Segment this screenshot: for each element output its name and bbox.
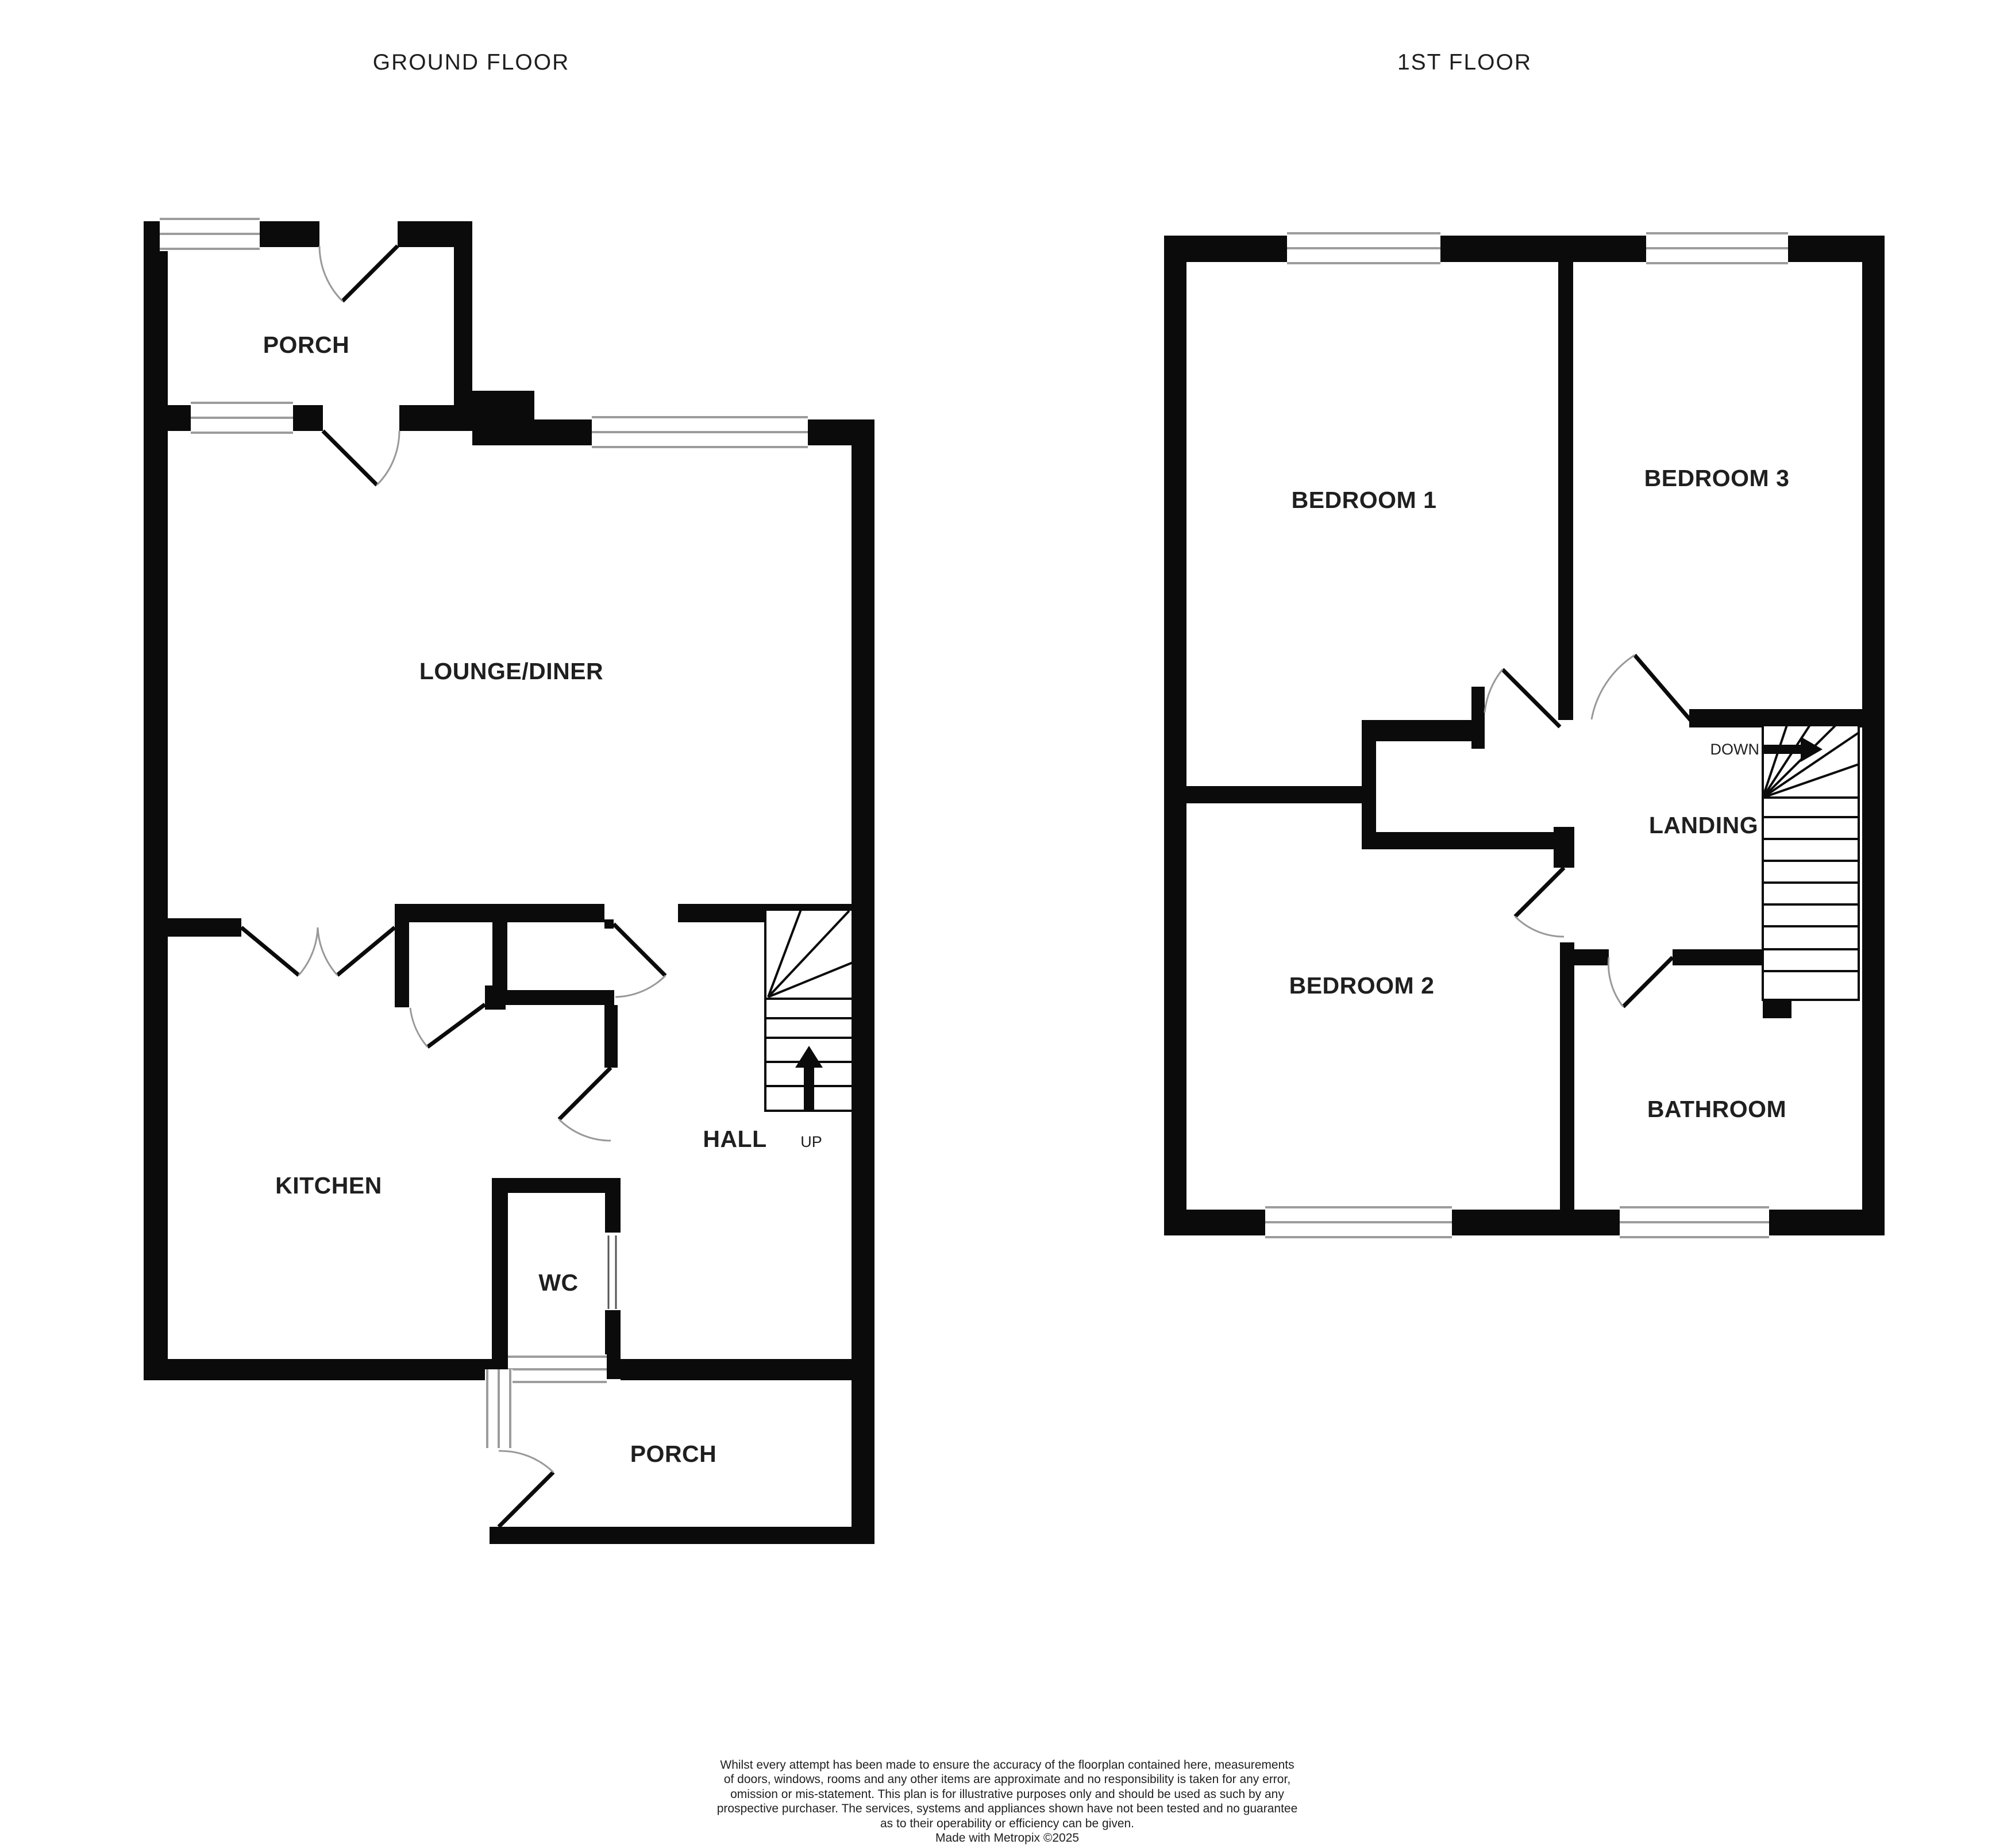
window-porch-top: [160, 217, 260, 251]
floorplan-drawing: GROUND FLOOR: [0, 0, 2015, 1848]
room-label-landing: LANDING: [1649, 812, 1758, 838]
gf-room-labels: PORCH LOUNGE/DINER KITCHEN HALL WC PORCH: [263, 332, 767, 1467]
door-bedroom1: [1485, 669, 1560, 727]
gf-left-wall: [144, 221, 168, 1380]
door-bathroom: [1608, 957, 1673, 1007]
window-lounge-left: [191, 401, 293, 435]
disclaimer-line: omission or mis-statement. This plan is …: [730, 1788, 1284, 1801]
room-label-hall: HALL: [703, 1126, 766, 1152]
window-porch-bottom-left: [485, 1369, 513, 1448]
room-label-bathroom: BATHROOM: [1647, 1096, 1786, 1122]
door-kitchen-double: [241, 927, 395, 975]
door-porch-top: [319, 246, 398, 301]
disclaimer-line: Whilst every attempt has been made to en…: [720, 1758, 1294, 1772]
credit-line: Made with Metropix ©2025: [935, 1831, 1079, 1845]
door-porch-lounge: [323, 431, 399, 485]
door-wc-pocket: [608, 1235, 616, 1309]
disclaimer-line: prospective purchaser. The services, sys…: [717, 1802, 1298, 1815]
room-label-lounge-diner: LOUNGE/DINER: [419, 658, 603, 684]
floorplan-page: GROUND FLOOR: [0, 0, 2015, 1848]
window-wc-porch: [508, 1354, 607, 1384]
door-bedroom3: [1592, 655, 1694, 724]
ff-stairs-direction: DOWN: [1710, 741, 1759, 758]
room-label-porch-top: PORCH: [263, 332, 350, 358]
window-bedroom1: [1287, 231, 1440, 265]
room-label-bedroom-1: BEDROOM 1: [1292, 487, 1437, 513]
gf-stairs-direction: UP: [800, 1133, 822, 1150]
gf-porch-right-wall: [454, 221, 472, 405]
room-label-bedroom-3: BEDROOM 3: [1644, 465, 1790, 491]
door-lounge-hall: [614, 924, 665, 997]
first-floor-title: 1ST FLOOR: [1397, 50, 1532, 75]
ground-floor-plan: GROUND FLOOR: [144, 50, 874, 1544]
ff-right-wall: [1862, 236, 1885, 1235]
ground-floor-title: GROUND FLOOR: [373, 50, 570, 75]
ff-left-wall: [1164, 236, 1186, 1235]
window-bathroom: [1620, 1205, 1769, 1239]
door-bedroom2: [1515, 868, 1564, 937]
disclaimer-line: of doors, windows, rooms and any other i…: [724, 1773, 1290, 1786]
disclaimer: Whilst every attempt has been made to en…: [717, 1758, 1298, 1845]
door-cupboard: [410, 1004, 485, 1047]
window-lounge-main: [592, 415, 808, 449]
room-label-porch-bottom: PORCH: [630, 1441, 717, 1467]
room-label-bedroom-2: BEDROOM 2: [1289, 972, 1435, 999]
room-label-kitchen: KITCHEN: [275, 1172, 382, 1199]
disclaimer-line: as to their operability or efficiency ca…: [880, 1817, 1134, 1830]
door-porch-bottom: [499, 1451, 553, 1527]
ff-windows: [1265, 231, 1788, 1239]
gf-staircase: UP: [765, 910, 853, 1150]
gf-right-wall: [852, 419, 874, 1544]
window-bedroom3: [1646, 231, 1788, 265]
door-hall-kitchen: [559, 1068, 611, 1141]
room-label-wc: WC: [538, 1269, 578, 1296]
first-floor-plan: 1ST FLOOR: [1164, 50, 1885, 1239]
window-bedroom2: [1265, 1205, 1452, 1239]
